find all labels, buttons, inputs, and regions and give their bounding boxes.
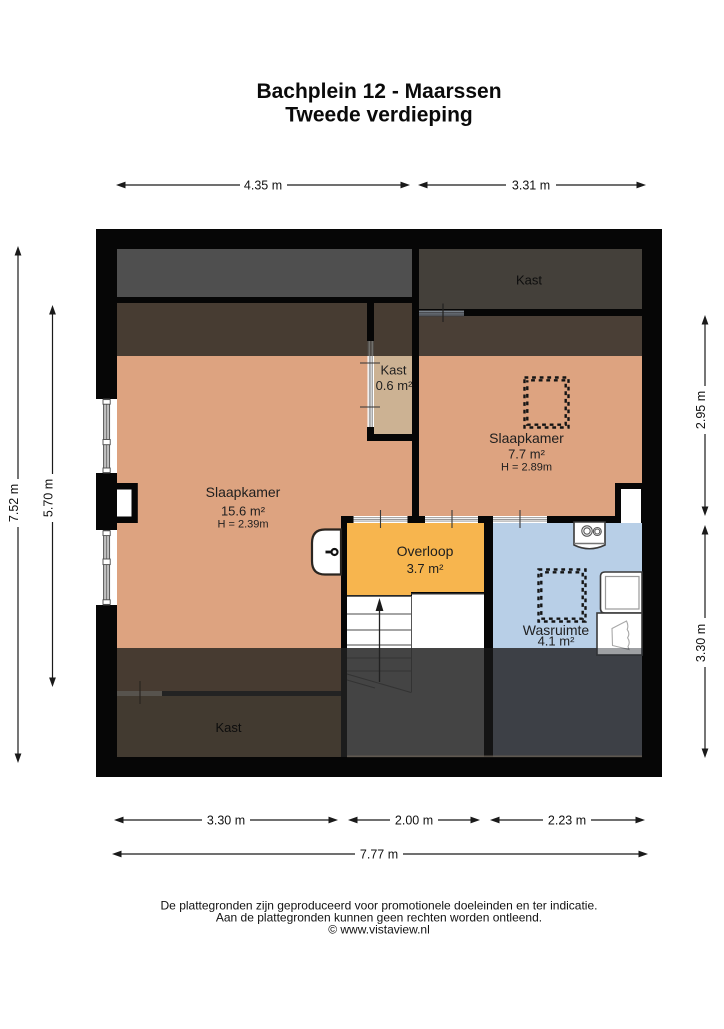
svg-text:7.7 m²: 7.7 m² (508, 447, 546, 462)
svg-text:H = 2.39m: H = 2.39m (217, 519, 268, 531)
svg-text:2.23 m: 2.23 m (548, 814, 586, 828)
svg-text:2.00 m: 2.00 m (395, 814, 433, 828)
svg-text:2.95 m: 2.95 m (694, 391, 708, 429)
svg-text:4.1 m²: 4.1 m² (538, 634, 576, 649)
svg-text:0.6 m²: 0.6 m² (376, 378, 414, 393)
svg-text:3.31 m: 3.31 m (512, 179, 550, 193)
svg-text:4.35 m: 4.35 m (244, 179, 282, 193)
svg-text:Kast: Kast (516, 273, 542, 288)
svg-text:3.30 m: 3.30 m (694, 624, 708, 662)
svg-text:5.70 m: 5.70 m (42, 479, 56, 517)
svg-text:7.77 m: 7.77 m (360, 848, 398, 862)
svg-text:Slaapkamer: Slaapkamer (206, 484, 281, 500)
svg-text:Tweede verdieping: Tweede verdieping (285, 104, 473, 127)
svg-text:Overloop: Overloop (397, 543, 454, 559)
svg-text:Bachplein 12 - Maarssen: Bachplein 12 - Maarssen (256, 80, 501, 103)
svg-text:3.30 m: 3.30 m (207, 814, 245, 828)
svg-text:3.7 m²: 3.7 m² (407, 561, 445, 576)
svg-text:© www.vistaview.nl: © www.vistaview.nl (328, 923, 430, 937)
svg-text:H = 2.89m: H = 2.89m (501, 462, 552, 474)
svg-text:15.6 m²: 15.6 m² (221, 504, 266, 519)
svg-text:7.52 m: 7.52 m (7, 484, 21, 522)
svg-text:Kast: Kast (215, 720, 241, 735)
svg-text:Slaapkamer: Slaapkamer (489, 430, 564, 446)
svg-text:Kast: Kast (380, 363, 406, 378)
